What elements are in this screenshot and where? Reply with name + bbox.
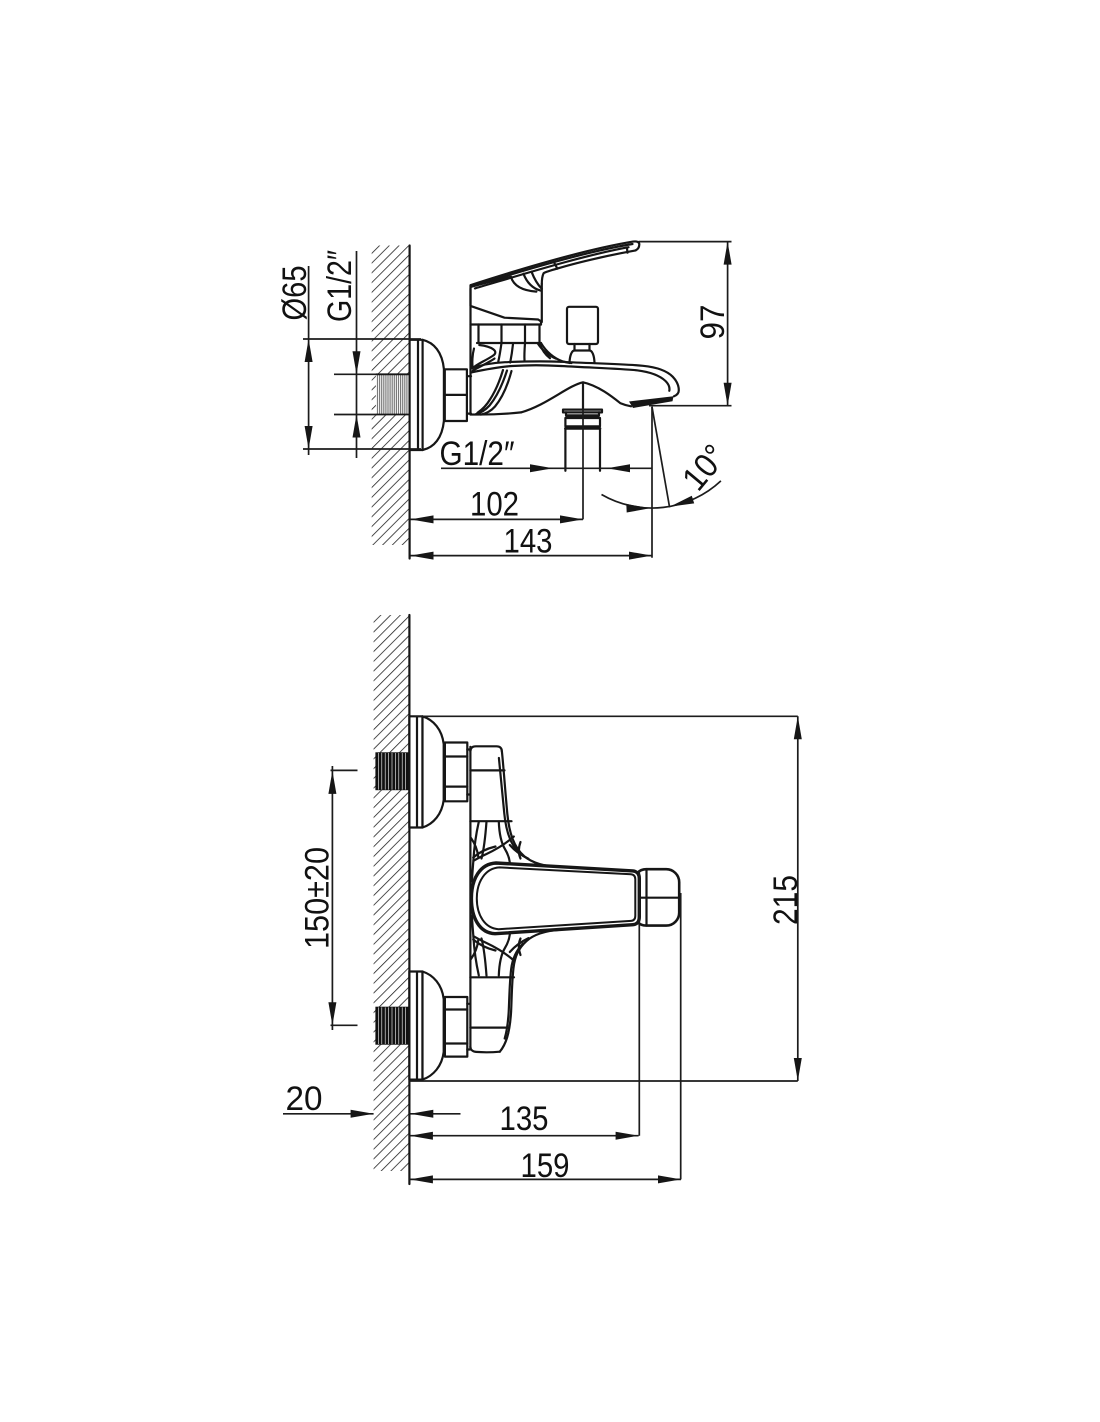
svg-text:G1/2″: G1/2″: [440, 435, 515, 473]
svg-text:215: 215: [767, 875, 805, 925]
svg-text:97: 97: [694, 305, 732, 340]
svg-text:102: 102: [470, 486, 519, 524]
svg-text:20: 20: [286, 1080, 323, 1118]
svg-text:135: 135: [500, 1100, 549, 1138]
svg-text:G1/2″: G1/2″: [321, 250, 359, 322]
svg-text:159: 159: [521, 1147, 570, 1185]
svg-text:143: 143: [504, 523, 553, 561]
svg-text:150±20: 150±20: [299, 847, 337, 949]
svg-text:Ø65: Ø65: [276, 266, 314, 321]
